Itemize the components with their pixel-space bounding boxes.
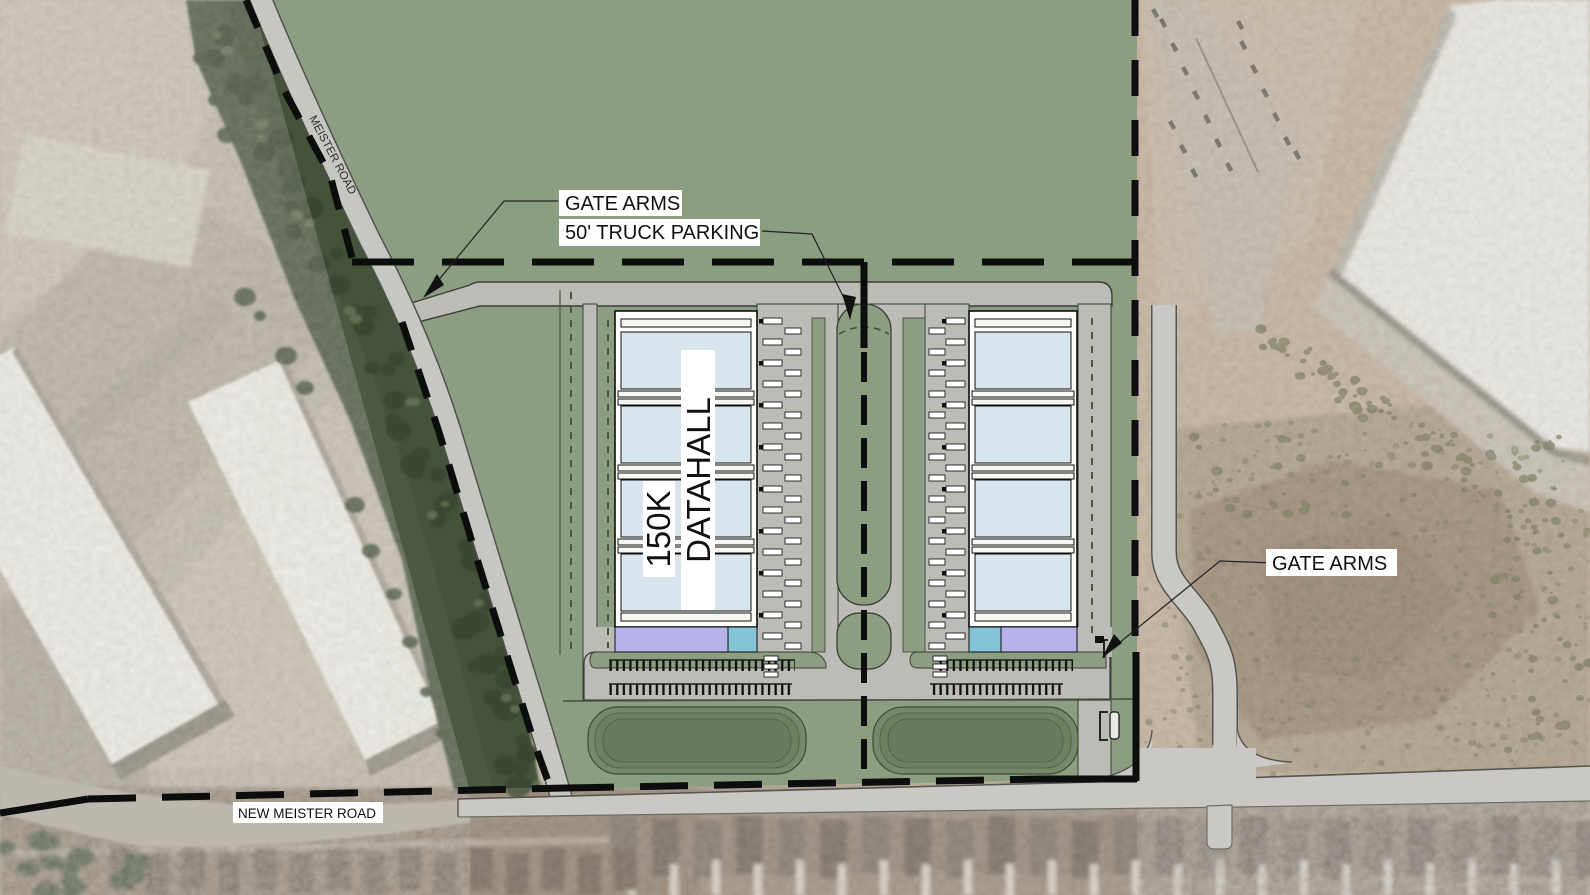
svg-text:GATE ARMS: GATE ARMS [1272,553,1387,575]
svg-text:150K: 150K [640,490,677,567]
svg-text:DATAHALL: DATAHALL [680,397,717,563]
svg-text:50' TRUCK PARKING: 50' TRUCK PARKING [565,222,759,244]
svg-text:GATE ARMS: GATE ARMS [565,193,680,215]
svg-text:NEW MEISTER ROAD: NEW MEISTER ROAD [238,806,376,821]
